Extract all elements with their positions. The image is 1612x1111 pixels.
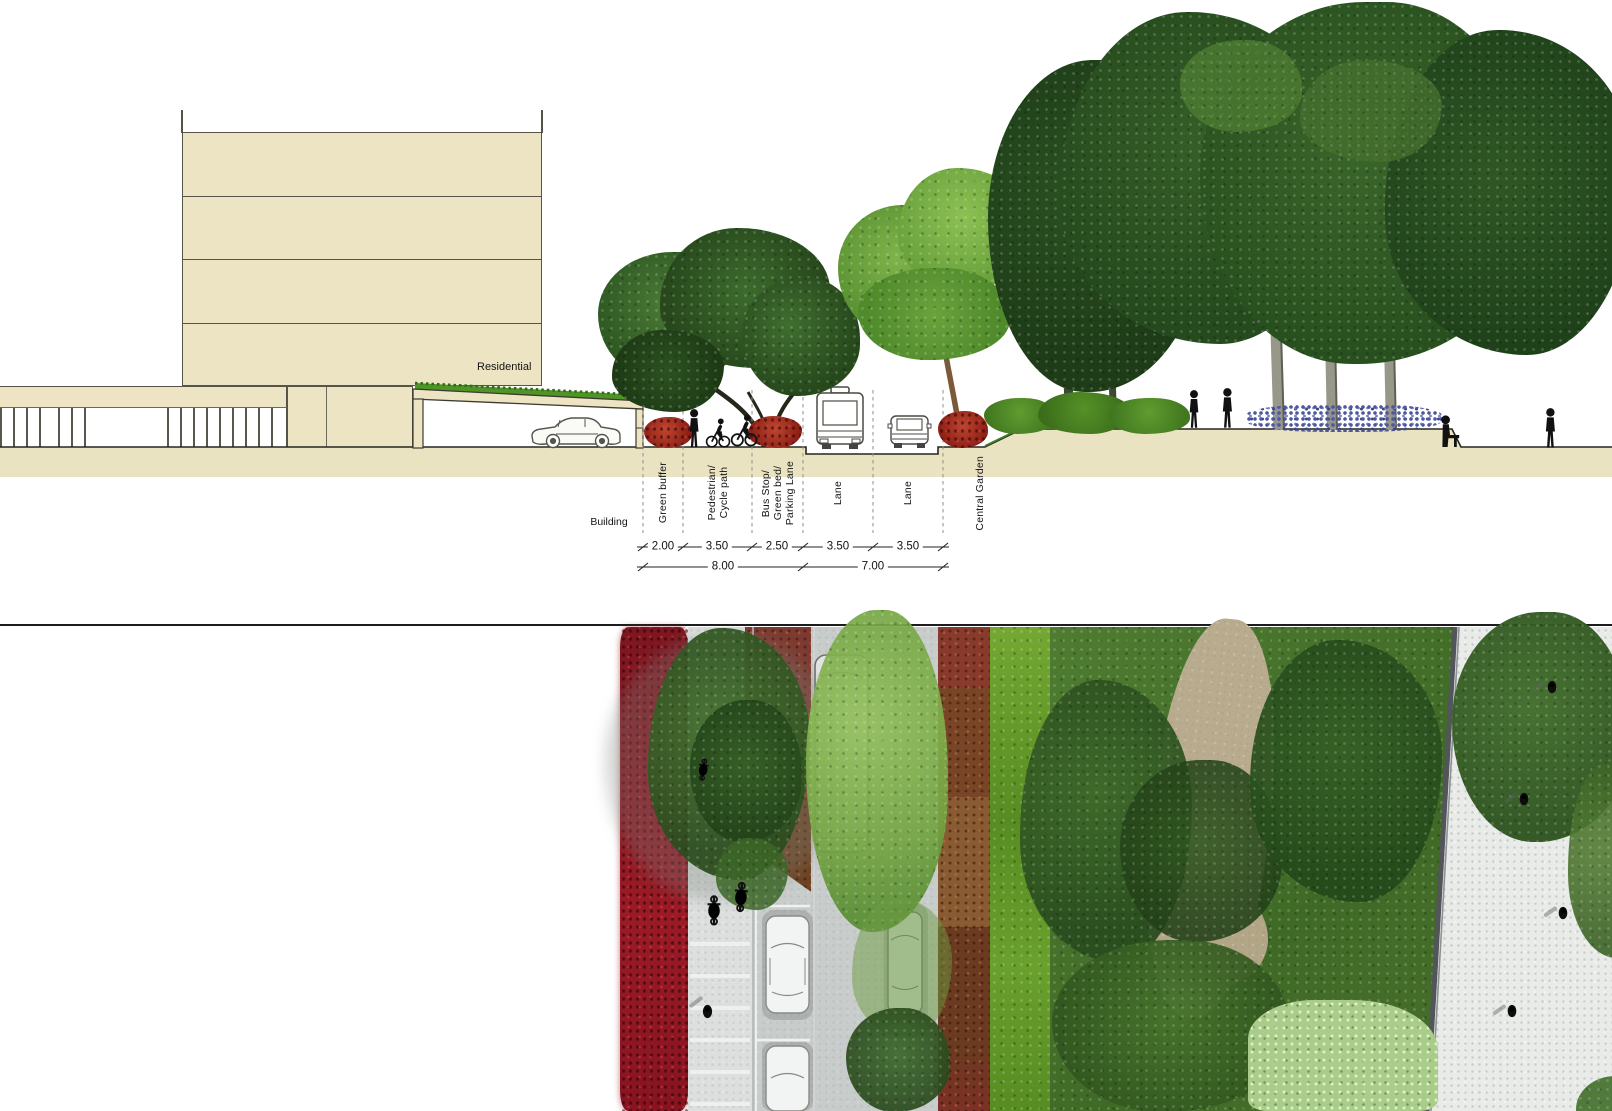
- section-car: [888, 416, 931, 448]
- dim-lane-right: 3.50: [893, 540, 923, 552]
- dim-lane-left: 3.50: [823, 540, 853, 552]
- carport-roof-fascia: [413, 389, 643, 409]
- person-silhouette: [1223, 388, 1232, 427]
- tree-canopy-light: [858, 268, 1010, 360]
- red-shrub: [938, 411, 988, 448]
- zone-label-line: Pedestrian/: [706, 465, 718, 520]
- paving-stripe: [690, 1038, 750, 1042]
- zone-label-ped-cycle: Pedestrian/Cycle path: [703, 447, 733, 539]
- red-shrub: [748, 416, 802, 448]
- dim-total-left: 8.00: [708, 560, 738, 572]
- tree-canopy: [612, 330, 724, 412]
- zone-label-line: Parking Lane: [784, 461, 796, 525]
- parapet-post: [541, 110, 543, 133]
- colonnade: [0, 408, 287, 448]
- plan-tree-canopy-light: [806, 610, 948, 932]
- plan-tree-canopy: [1250, 640, 1442, 902]
- flower-bed-blue: [1246, 404, 1442, 432]
- podium-fascia: [0, 386, 287, 408]
- zone-label-lane-right: Lane: [895, 447, 921, 539]
- dim-ped-cycle: 3.50: [702, 540, 732, 552]
- zone-label-line: Green bed/: [772, 461, 784, 525]
- person-silhouette: [1190, 390, 1199, 428]
- parapet-post: [181, 110, 183, 133]
- zone-label-line: Cycle path: [718, 465, 730, 520]
- carport-left-pier: [413, 399, 423, 448]
- garden-tree-canopy: [1180, 40, 1302, 132]
- paving-stripe: [690, 1070, 750, 1074]
- zone-label-green-buffer: Green buffer: [650, 447, 676, 539]
- dim-total-right: 7.00: [858, 560, 888, 572]
- zone-label-lane-left: Lane: [825, 447, 851, 539]
- zone-label-central-garden: Central Garden: [967, 447, 993, 539]
- column-group: [58, 408, 97, 448]
- plan-groundcover-patch: [1248, 1000, 1438, 1111]
- sitting-person-silhouette: [1441, 415, 1459, 447]
- dimension-line-row2: [637, 563, 949, 571]
- carport-car: [532, 418, 620, 448]
- garden-tree-canopy: [1300, 60, 1442, 162]
- person-silhouette: [1546, 408, 1555, 447]
- paving-stripe: [690, 1102, 750, 1106]
- plan-tree-canopy: [846, 1008, 950, 1111]
- section-bus: [817, 387, 863, 449]
- garden-shrub: [1108, 398, 1190, 434]
- building-floor-line: [183, 323, 541, 324]
- section-building: [182, 132, 542, 386]
- podium-block: [287, 386, 413, 448]
- cyclist-silhouette: [707, 418, 730, 446]
- zone-label-line: Bus Stop/: [760, 461, 772, 525]
- column-group: [167, 408, 283, 448]
- building-floor-line: [183, 196, 541, 197]
- zone-label-bus-stop: Bus Stop/Green bed/Parking Lane: [757, 447, 799, 539]
- building-floor-line: [183, 259, 541, 260]
- paving-stripe: [690, 1006, 750, 1010]
- dim-bus-stop: 2.50: [762, 540, 792, 552]
- plan-tree-canopy: [690, 700, 802, 842]
- podium-joint-line: [326, 387, 327, 447]
- paving-stripe: [690, 942, 750, 946]
- column-group: [0, 408, 47, 448]
- residential-label: Residential: [477, 361, 547, 373]
- building-label: Building: [578, 516, 640, 528]
- plan-tree-canopy: [716, 838, 788, 910]
- dim-green-buffer: 2.00: [648, 540, 678, 552]
- paving-stripe: [690, 974, 750, 978]
- street-design-drawing: Residential Building Green buffer Pedest…: [0, 0, 1612, 1111]
- carport-right-pier: [636, 409, 643, 448]
- red-shrub: [644, 417, 692, 448]
